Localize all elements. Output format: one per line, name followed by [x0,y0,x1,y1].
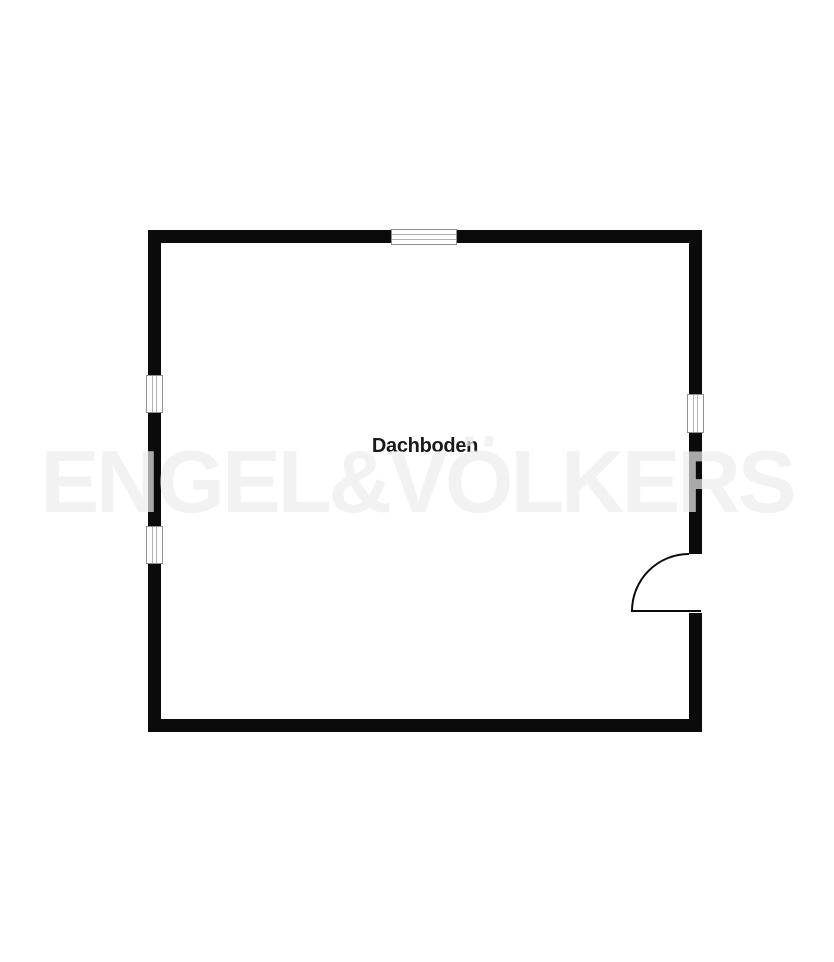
window-top [391,229,457,245]
window-glazing-line [693,395,694,432]
window-glazing-line [156,376,157,412]
wall-left [148,230,161,732]
window-glazing-line [156,527,157,563]
door-swing-arc-icon [620,545,710,620]
window-glazing-line [697,395,698,432]
floorplan-canvas: Dachboden ENGEL&VÖLKERS [0,0,834,962]
window-left-lower [146,526,163,564]
window-glazing-line [392,234,456,235]
window-glazing-line [152,527,153,563]
wall-right [689,230,702,732]
wall-bottom [148,719,702,732]
window-glazing-line [152,376,153,412]
window-glazing-line [392,239,456,240]
room-label: Dachboden [161,435,689,458]
window-left-upper [146,375,163,413]
window-right [687,394,704,433]
